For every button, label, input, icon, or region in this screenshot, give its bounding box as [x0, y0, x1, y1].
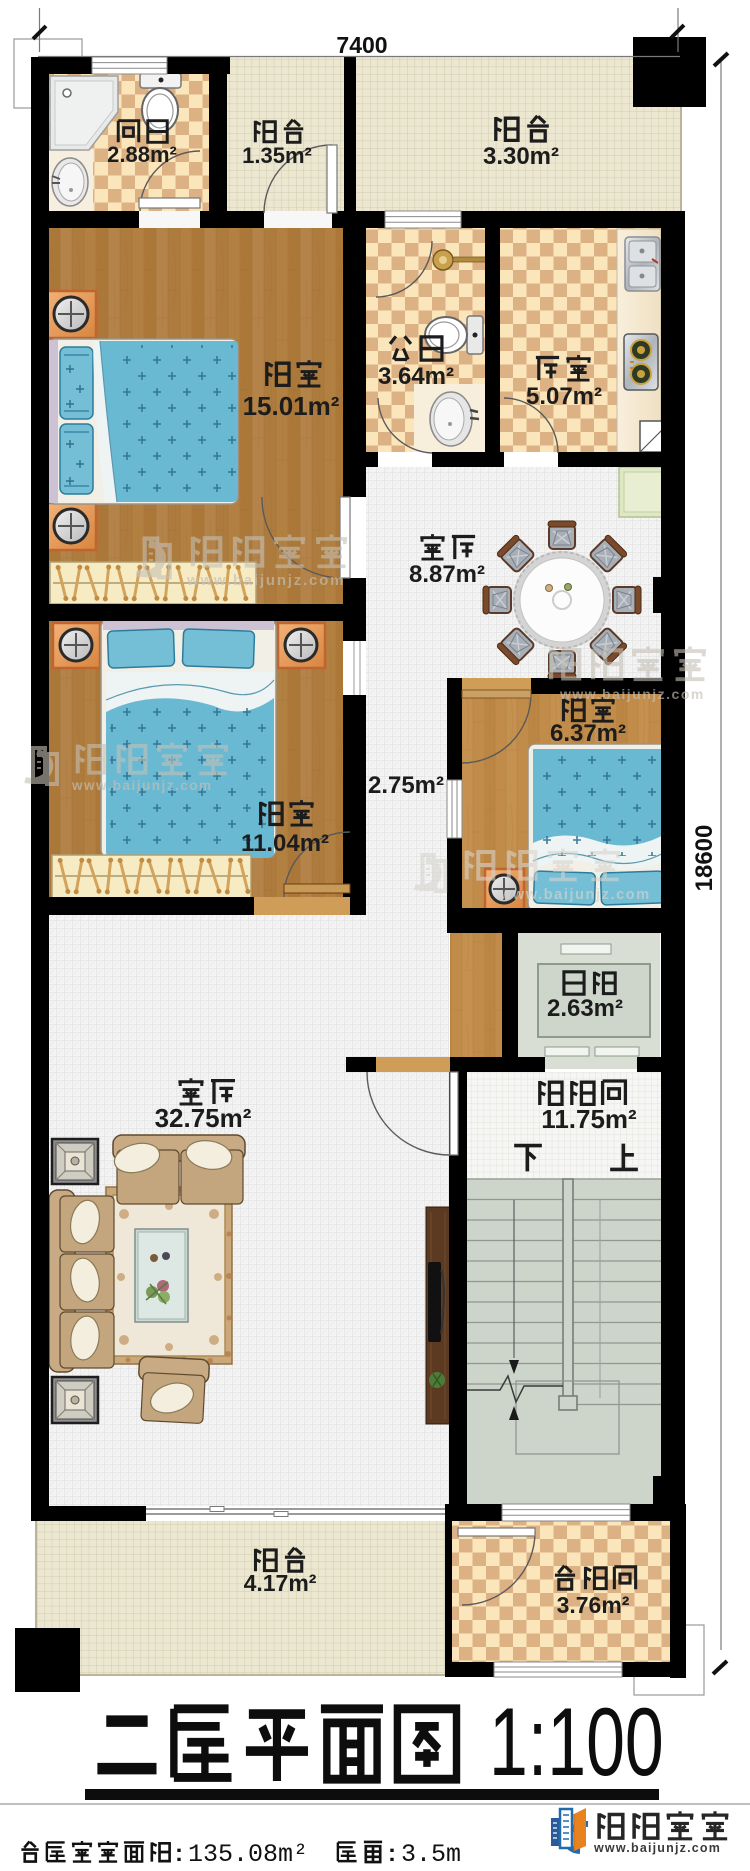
svg-text:2.75m²: 2.75m² [368, 772, 444, 799]
svg-text:5.07m²: 5.07m² [526, 383, 602, 410]
svg-text::: : [388, 1840, 396, 1867]
svg-text:www.baijunjz.com: www.baijunjz.com [71, 778, 213, 793]
svg-text:6.37m²: 6.37m² [550, 720, 626, 747]
svg-text:4.17m²: 4.17m² [244, 1570, 317, 1596]
svg-text:3.30m²: 3.30m² [483, 143, 559, 170]
svg-text:18600: 18600 [691, 825, 718, 892]
svg-text::: : [175, 1840, 183, 1867]
svg-text:www.baijunjz.com: www.baijunjz.com [559, 686, 705, 702]
svg-text:www.baijunjz.com: www.baijunjz.com [499, 887, 651, 903]
svg-text:3.5m: 3.5m [401, 1840, 461, 1869]
svg-text:11.75m²: 11.75m² [541, 1104, 637, 1134]
svg-text:1.35m²: 1.35m² [242, 143, 312, 168]
svg-text:135.08m²: 135.08m² [188, 1840, 308, 1869]
svg-text:2.63m²: 2.63m² [547, 995, 623, 1022]
svg-text:11.04m²: 11.04m² [241, 830, 329, 857]
svg-text:8.87m²: 8.87m² [409, 561, 485, 588]
svg-text:32.75m²: 32.75m² [155, 1103, 252, 1133]
svg-text:www.baijunjz.com: www.baijunjz.com [186, 572, 345, 589]
svg-text:15.01m²: 15.01m² [243, 391, 340, 421]
svg-text:3.64m²: 3.64m² [378, 363, 454, 390]
svg-text:1:100: 1:100 [489, 1687, 664, 1796]
svg-text:2.88m²: 2.88m² [107, 142, 177, 167]
svg-text:www.baijunjz.com: www.baijunjz.com [593, 1841, 721, 1855]
svg-text:3.76m²: 3.76m² [557, 1592, 630, 1618]
svg-text:7400: 7400 [336, 32, 387, 58]
